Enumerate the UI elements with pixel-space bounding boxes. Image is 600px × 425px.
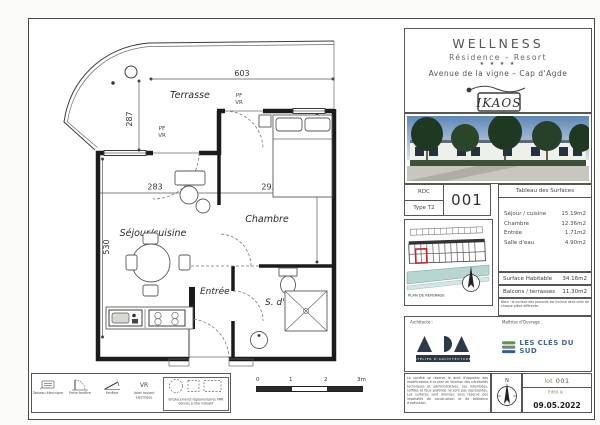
project-title-block: WELLNESS Résidence – Resort ★ ★ ★ ★ Aven… — [404, 28, 592, 113]
dim-terrace-depth: 287 — [125, 111, 134, 126]
legend-item-fenetre: Fenêtre — [96, 377, 128, 400]
surface-value: 1.71m2 — [565, 229, 586, 239]
habitable-value: 34.16m2 — [562, 276, 587, 282]
washbasin — [251, 332, 268, 349]
surface-row: Séjour / cuisine 15.19m2 — [504, 210, 586, 220]
legend-item-porte-fenetre: Porte fenêtre — [64, 377, 96, 400]
north-label: N — [505, 378, 509, 384]
pf-label-1: PF — [159, 126, 165, 132]
cles-du-sud-icon — [502, 340, 516, 355]
habitable-surface: Surface Habitable 34.16m2 — [498, 272, 592, 285]
scale-tick: 0 — [256, 377, 260, 383]
label-entree: Entrée — [200, 286, 230, 297]
balconies-label: Balcons / terrasses — [503, 289, 555, 295]
surface-value: 4.90m2 — [565, 239, 586, 249]
surface-row: Entrée 1.71m2 — [504, 229, 586, 239]
legend-item-volet: VR Volet roulant électrique — [128, 377, 160, 408]
lot-row: lot 001 — [523, 374, 591, 388]
edited-label: Édité le : — [527, 390, 587, 395]
date-row: Édité le : 09.05.2022 — [523, 388, 591, 412]
window-icon — [103, 378, 121, 391]
project-address: Avenue de la vigne – Cap d'Agde — [405, 69, 591, 78]
location-map: PLAN DE REPERAGE — [404, 219, 493, 306]
scale-bar-strip — [256, 386, 363, 392]
lot-label: lot — [544, 377, 552, 385]
vr-label-2: VR — [235, 100, 243, 106]
lot-number: 001 — [556, 377, 570, 385]
unit-level: RDC — [405, 185, 443, 201]
surface-label: Salle d'eau — [504, 239, 534, 249]
surfaces-note: Nota : la surface des placards est inclu… — [498, 298, 592, 316]
issue-block: lot 001 Édité le : 09.05.2022 — [522, 373, 592, 413]
owner-name: LES CLÉS DU SUD — [519, 339, 591, 355]
shower — [285, 291, 327, 331]
label-terrasse: Terrasse — [170, 90, 210, 101]
edition-date: 09.05.2022 — [533, 401, 580, 410]
pf-label-2: PF — [236, 93, 242, 99]
north-compass-icon: N — [494, 375, 520, 411]
surface-row: Salle d'eau 4.90m2 — [504, 239, 586, 249]
north-compass-block: N — [491, 373, 522, 413]
ikaos-logo: IKAOS — [461, 80, 535, 114]
toilet — [279, 268, 297, 294]
legend-label: Tableau électrique — [32, 391, 64, 395]
floor-plan: 603 287 283 293 440 530 — [29, 19, 404, 371]
ada-logo: ATELIER D'ARCHITECTURE — [415, 333, 471, 363]
unit-number: 001 — [444, 185, 490, 215]
cles-du-sud-logo: LES CLÉS DU SUD — [502, 339, 591, 355]
vr-symbol-icon: VR — [135, 378, 153, 391]
kitchen-counter — [106, 307, 193, 329]
svg-text:VR: VR — [140, 382, 148, 389]
electrical-panel-icon — [39, 378, 57, 391]
project-stars: ★ ★ ★ ★ — [405, 62, 591, 68]
drawing-sheet: 603 287 283 293 440 530 — [28, 18, 595, 420]
residence-photo-image — [407, 116, 589, 181]
surfaces-table: Tableau des Surfaces Séjour / cuisine 15… — [498, 184, 592, 272]
scale-bar: 0 1 2 3m — [256, 377, 376, 397]
legend: Tableau électrique Porte fenêtre Fenêtre… — [31, 373, 231, 413]
dim-terrace-width: 603 — [234, 69, 249, 78]
unit-type: Type T2 — [405, 201, 443, 216]
kitchen-tall-unit — [175, 171, 210, 213]
map-label: PLAN DE REPERAGE — [408, 293, 488, 298]
legend-label: Porte fenêtre — [64, 391, 96, 395]
legend-item-electrical: Tableau électrique — [32, 377, 64, 400]
window-sejour — [104, 150, 146, 156]
door-swing-icon — [71, 378, 89, 391]
disclaimer-text: La société se réserve le droit d'apporte… — [407, 376, 488, 405]
ikaos-logo-text: IKAOS — [476, 96, 522, 110]
terrace-column — [125, 66, 137, 78]
legend-label: Fenêtre — [96, 391, 128, 395]
dining-table — [126, 233, 190, 296]
dim-sejour-width: 283 — [147, 183, 162, 192]
surface-label: Séjour / cuisine — [504, 210, 546, 220]
surfaces-note-text: Nota : la surface des placards est inclu… — [501, 300, 589, 308]
project-name: WELLNESS — [405, 36, 591, 51]
pmr-clearance-icon — [167, 378, 225, 394]
surface-row: Chambre 12.36m2 — [504, 220, 586, 230]
balconies-surface: Balcons / terrasses 11.30m2 — [498, 285, 592, 298]
owner-label: Maîtrise d'Ouvrage : — [502, 320, 590, 325]
surface-label: Entrée — [504, 229, 522, 239]
architect-label: Architecte : — [410, 320, 490, 325]
window-chambre — [293, 108, 325, 114]
legend-label: Volet roulant électrique — [128, 391, 160, 400]
dim-sejour-depth: 530 — [102, 239, 111, 254]
surface-value: 12.36m2 — [561, 220, 586, 230]
scale-tick: 2 — [324, 377, 328, 383]
balconies-value: 11.30m2 — [562, 289, 587, 295]
stakeholders-block: Architecte : Maîtrise d'Ouvrage : ATELIE… — [404, 316, 592, 372]
pmr-label: Emplacements réglementaires PMR donnés à… — [165, 398, 227, 406]
scale-tick: 1 — [289, 377, 293, 383]
legend-pmr: Emplacements réglementaires PMR donnés à… — [163, 377, 229, 411]
habitable-label: Surface Habitable — [503, 276, 552, 282]
surface-label: Chambre — [504, 220, 529, 230]
ada-logo-subtext: ATELIER D'ARCHITECTURE — [415, 357, 471, 361]
unit-id-block: RDC Type T2 001 — [404, 184, 491, 216]
scanned-plan-page: 603 287 283 293 440 530 — [0, 0, 600, 425]
residence-photo — [404, 113, 592, 184]
disclaimer-block: La société se réserve le droit d'apporte… — [404, 373, 491, 413]
surface-value: 15.19m2 — [561, 210, 586, 220]
surfaces-title: Tableau des Surfaces — [499, 185, 591, 198]
vr-label-1: VR — [158, 133, 166, 139]
scale-tick: 3m — [357, 377, 366, 383]
label-chambre: Chambre — [245, 214, 289, 225]
